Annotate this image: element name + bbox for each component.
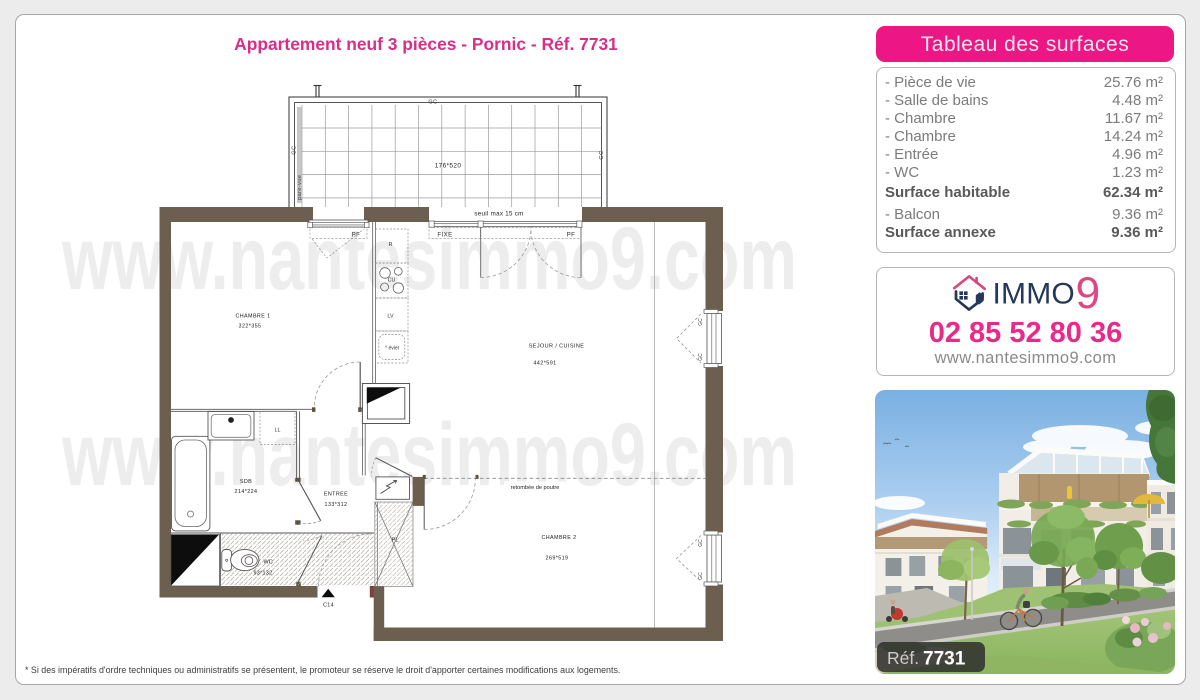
svg-text:Réf.: Réf. [887, 648, 919, 668]
svg-text:retombée de poutre: retombée de poutre [511, 485, 560, 491]
svg-text:GC: GC [428, 100, 437, 106]
svg-text:PL: PL [391, 538, 399, 544]
svg-text:ENTREE: ENTREE [324, 492, 348, 498]
svg-text:93*132: 93*132 [254, 571, 273, 577]
svg-text:PF: PF [352, 232, 361, 239]
svg-text:LV: LV [387, 314, 394, 320]
svg-text:CHAMBRE 2: CHAMBRE 2 [541, 535, 576, 541]
svg-text:SEJOUR / CUISINE: SEJOUR / CUISINE [529, 344, 585, 350]
svg-text:GC: GC [698, 572, 704, 580]
svg-text:176*520: 176*520 [435, 163, 462, 170]
svg-text:CHAMBRE 1: CHAMBRE 1 [235, 314, 270, 320]
svg-text:133*312: 133*312 [325, 502, 348, 508]
svg-text:LL: LL [275, 428, 281, 434]
svg-text:322*355: 322*355 [239, 324, 262, 330]
svg-text:7731: 7731 [923, 649, 966, 670]
svg-text:GC: GC [292, 145, 298, 154]
svg-text:IMMO: IMMO [992, 278, 1074, 311]
svg-text:GC: GC [698, 539, 704, 547]
svg-text:GC: GC [599, 150, 605, 159]
svg-text:seuil max 15 cm: seuil max 15 cm [474, 211, 523, 218]
svg-text:R: R [389, 242, 393, 248]
svg-text:WC: WC [264, 560, 274, 566]
svg-text:SDB: SDB [240, 479, 252, 485]
svg-text:C14: C14 [323, 603, 334, 609]
svg-text:442*591: 442*591 [533, 361, 556, 367]
svg-text:GC: GC [698, 353, 704, 361]
svg-text:CU: CU [388, 278, 396, 284]
svg-text:9: 9 [1075, 269, 1100, 317]
svg-text:^ évier: ^ évier [385, 346, 400, 352]
svg-text:GC: GC [698, 318, 704, 326]
svg-text:FIXE: FIXE [437, 232, 452, 239]
svg-text:214*224: 214*224 [235, 489, 258, 495]
svg-text:pare-vue: pare-vue [297, 175, 303, 200]
svg-text:PF: PF [567, 232, 576, 239]
svg-text:269*519: 269*519 [546, 556, 569, 562]
